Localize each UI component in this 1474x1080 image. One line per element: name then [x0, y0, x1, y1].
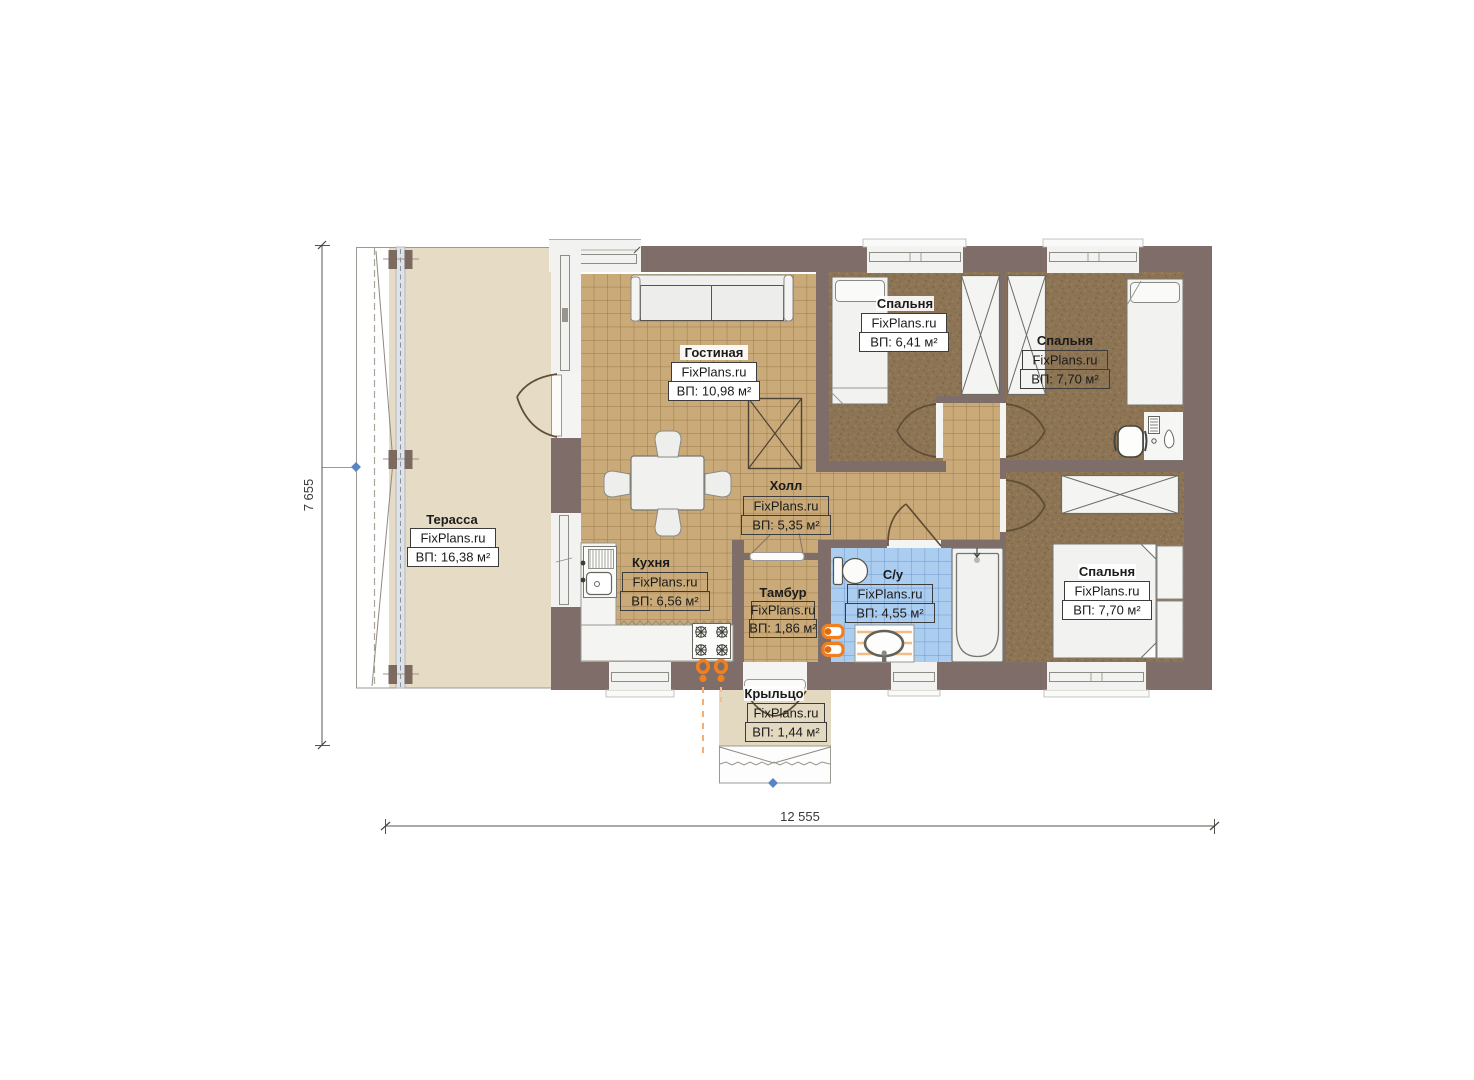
svg-text:Гостиная: Гостиная	[685, 345, 744, 360]
svg-text:Холл: Холл	[770, 478, 803, 493]
svg-text:ВП: 4,55 м²: ВП: 4,55 м²	[856, 606, 924, 621]
svg-text:FixPlans.ru: FixPlans.ru	[857, 587, 922, 602]
svg-text:FixPlans.ru: FixPlans.ru	[420, 531, 485, 546]
svg-text:Спальня: Спальня	[1037, 333, 1093, 348]
svg-text:С/у: С/у	[883, 567, 904, 582]
svg-text:ВП: 7,70 м²: ВП: 7,70 м²	[1031, 372, 1099, 387]
svg-text:ВП: 7,70 м²: ВП: 7,70 м²	[1073, 603, 1141, 618]
svg-text:FixPlans.ru: FixPlans.ru	[1032, 353, 1097, 368]
svg-text:Тамбур: Тамбур	[759, 585, 806, 600]
svg-text:ВП: 6,56 м²: ВП: 6,56 м²	[631, 594, 699, 609]
svg-text:Крыльцо: Крыльцо	[744, 686, 803, 701]
svg-text:Кухня: Кухня	[632, 555, 670, 570]
svg-text:ВП: 16,38 м²: ВП: 16,38 м²	[416, 550, 491, 565]
svg-text:FixPlans.ru: FixPlans.ru	[753, 706, 818, 721]
svg-text:12 555: 12 555	[780, 809, 820, 824]
svg-text:ВП: 1,44 м²: ВП: 1,44 м²	[752, 725, 820, 740]
svg-text:ВП: 5,35 м²: ВП: 5,35 м²	[752, 518, 820, 533]
svg-text:Спальня: Спальня	[877, 296, 933, 311]
svg-text:ВП: 10,98 м²: ВП: 10,98 м²	[677, 384, 752, 399]
svg-text:FixPlans.ru: FixPlans.ru	[871, 316, 936, 331]
svg-text:FixPlans.ru: FixPlans.ru	[632, 575, 697, 590]
svg-text:FixPlans.ru: FixPlans.ru	[750, 603, 815, 618]
svg-text:ВП: 6,41 м²: ВП: 6,41 м²	[870, 335, 938, 350]
svg-text:7 655: 7 655	[301, 479, 316, 512]
svg-text:Спальня: Спальня	[1079, 564, 1135, 579]
svg-text:FixPlans.ru: FixPlans.ru	[753, 499, 818, 514]
svg-text:Терасса: Терасса	[426, 512, 478, 527]
svg-text:FixPlans.ru: FixPlans.ru	[681, 365, 746, 380]
svg-text:ВП: 1,86 м²: ВП: 1,86 м²	[749, 621, 817, 636]
svg-text:FixPlans.ru: FixPlans.ru	[1074, 584, 1139, 599]
